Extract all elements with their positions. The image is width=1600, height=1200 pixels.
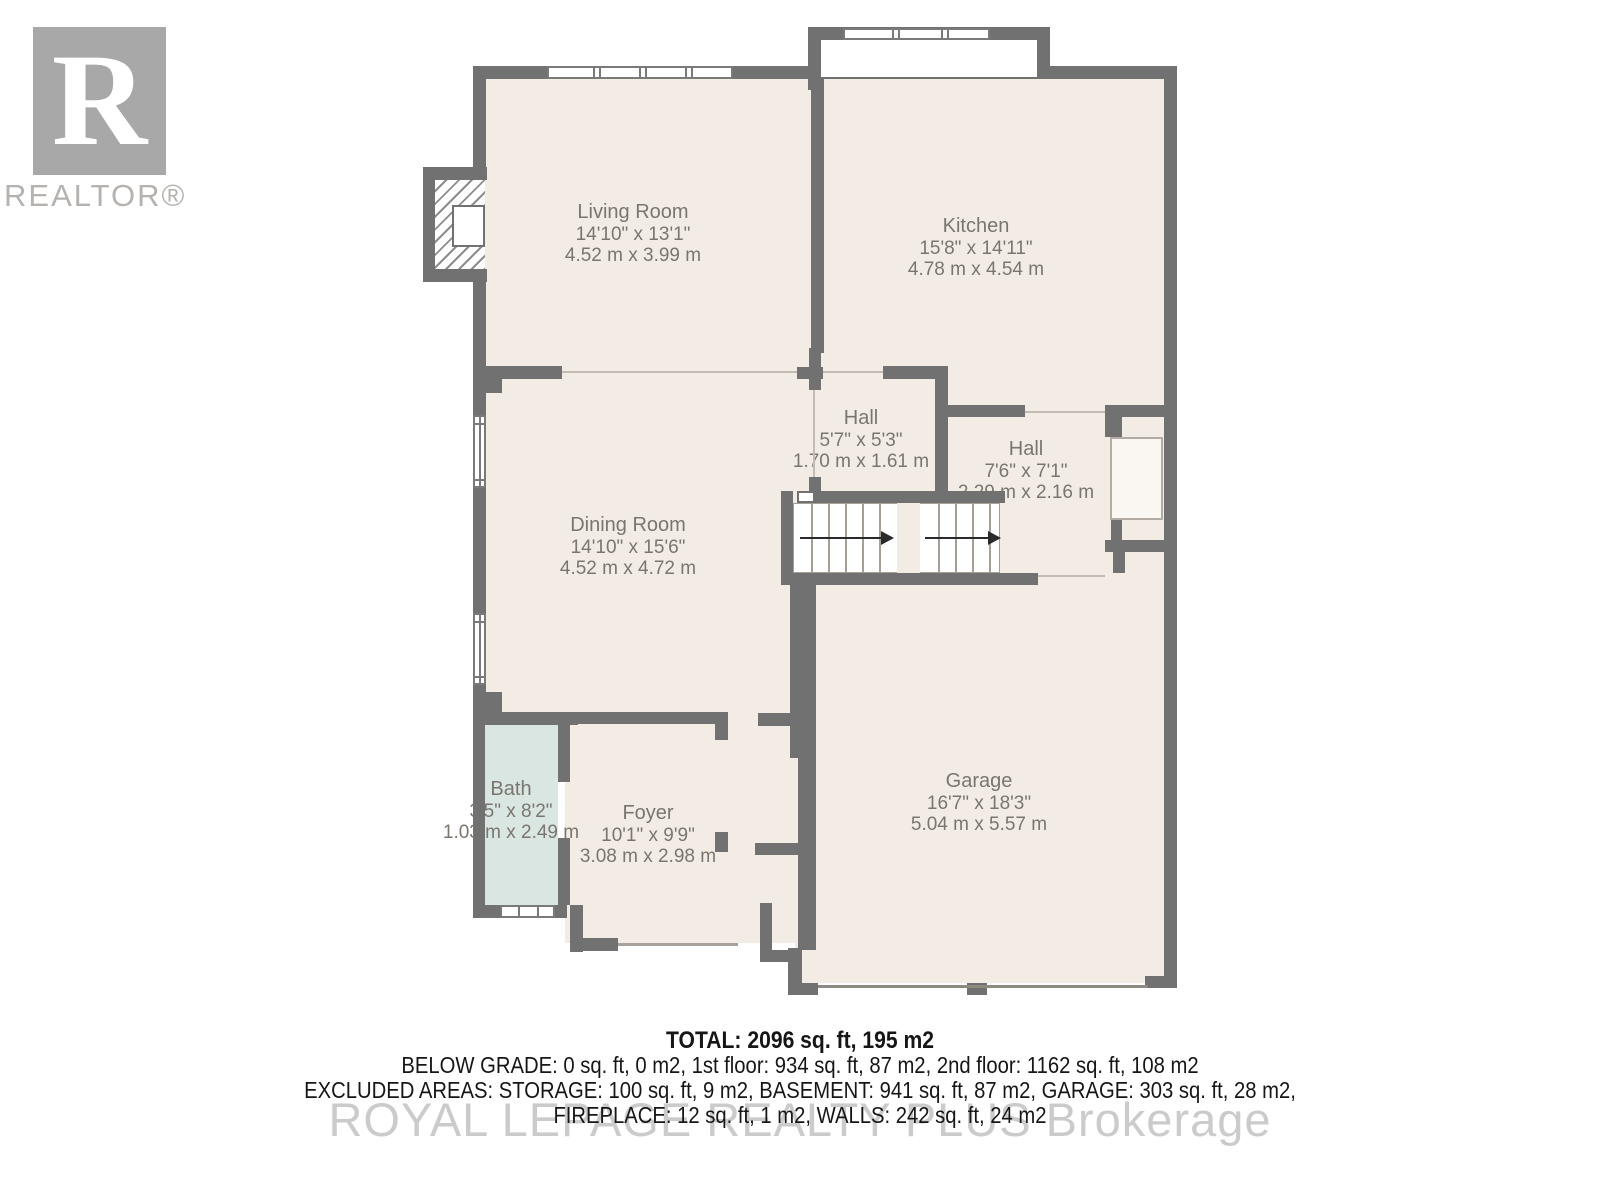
bath-window	[500, 905, 555, 918]
room-dim-imperial: 15'8" x 14'11"	[846, 238, 1106, 259]
opening-line	[1038, 575, 1105, 577]
bay-window-interior	[821, 40, 1037, 78]
wall	[935, 366, 948, 503]
floor-dining-lower	[480, 585, 790, 715]
wall-garage-left	[790, 585, 816, 758]
wall	[473, 66, 486, 180]
wall	[473, 725, 485, 905]
fireplace-wall	[423, 269, 487, 282]
staircase-landing-gap	[897, 503, 920, 573]
wall	[1111, 520, 1122, 542]
opening-line	[823, 371, 883, 373]
wall-garage-bottom	[1145, 976, 1177, 988]
realtor-logo-r: R	[33, 27, 166, 175]
wall-cross-junction	[797, 367, 823, 379]
summary-line: BELOW GRADE: 0 sq. ft, 0 m2, 1st floor: …	[96, 1053, 1504, 1078]
wall-stairs-top	[815, 491, 1005, 503]
wall-right-exterior	[1164, 66, 1177, 988]
room-dim-metric: 4.52 m x 3.99 m	[503, 245, 763, 266]
summary-total: TOTAL: 2096 sq. ft, 195 m2	[96, 1028, 1504, 1053]
wall	[758, 713, 792, 726]
stairs-arrowhead-icon	[988, 531, 1001, 545]
living-room-window	[547, 66, 733, 79]
bay-wall	[1037, 27, 1050, 79]
stairs-direction-arrow	[925, 537, 988, 539]
fireplace-wall	[423, 167, 487, 180]
wall-foyer-bottom	[570, 938, 618, 951]
wall-living-kitchen-divider	[811, 79, 824, 353]
realtor-logo: R	[33, 27, 166, 175]
room-name: Garage	[849, 769, 1109, 793]
wall-garage-top	[788, 573, 1038, 585]
opening-line	[562, 371, 797, 373]
room-name: Bath	[381, 777, 641, 801]
room-dim-metric: 4.52 m x 4.72 m	[498, 558, 758, 579]
room-label-foyer: Foyer 10'1" x 9'9" 3.08 m x 2.98 m	[518, 801, 778, 867]
opening-line	[813, 390, 815, 477]
wall	[760, 950, 790, 962]
room-label-garage: Garage 16'7" x 18'3" 5.04 m x 5.57 m	[849, 769, 1109, 835]
summary-line: EXCLUDED AREAS: STORAGE: 100 sq. ft, 9 m…	[96, 1078, 1504, 1103]
room-dim-imperial: 10'1" x 9'9"	[518, 825, 778, 846]
dining-room-window	[473, 613, 486, 685]
wall	[1105, 417, 1122, 437]
wall-garage-bottom	[788, 983, 818, 995]
wall-foyer-right	[715, 832, 728, 852]
wall	[473, 282, 486, 415]
wall-garage-left	[798, 758, 816, 950]
front-door-threshold	[618, 943, 738, 946]
wall	[1113, 547, 1125, 573]
wall	[1105, 405, 1177, 417]
wall	[760, 903, 772, 953]
stairs-arrowhead-icon	[881, 531, 894, 545]
room-label-living-room: Living Room 14'10" x 13'1" 4.52 m x 3.99…	[503, 200, 763, 266]
wall	[486, 379, 502, 393]
bay-sill-line	[821, 77, 1037, 79]
dining-room-window	[473, 415, 486, 488]
stairs-direction-arrow	[800, 537, 881, 539]
room-label-dining-room: Dining Room 14'10" x 15'6" 4.52 m x 4.72…	[498, 513, 758, 579]
room-dim-imperial: 14'10" x 15'6"	[498, 537, 758, 558]
wall	[473, 66, 547, 79]
room-dim-metric: 3.08 m x 2.98 m	[518, 846, 778, 867]
stairs-newel-box	[797, 491, 815, 503]
kitchen-bay-window	[843, 28, 990, 40]
room-dim-metric: 4.78 m x 4.54 m	[846, 259, 1106, 280]
floor-plan-page: Living Room 14'10" x 13'1" 4.52 m x 3.99…	[0, 0, 1600, 1200]
wall	[948, 405, 1025, 417]
wall-foyer-right	[715, 712, 728, 740]
summary-line: FIREPLACE: 12 sq. ft, 1 m2, WALLS: 242 s…	[96, 1103, 1504, 1128]
wall	[473, 488, 486, 613]
garage-door-line	[818, 985, 1148, 988]
wall-bath-right	[558, 838, 570, 905]
fireplace-wall	[423, 167, 435, 282]
room-dim-metric: 5.04 m x 5.57 m	[849, 814, 1109, 835]
fireplace-firebox	[452, 205, 485, 247]
wall	[733, 66, 812, 79]
area-summary: TOTAL: 2096 sq. ft, 195 m2 BELOW GRADE: …	[0, 1028, 1600, 1128]
realtor-logo-label: REALTOR®	[4, 178, 224, 214]
wall	[755, 843, 798, 855]
room-label-kitchen: Kitchen 15'8" x 14'11" 4.78 m x 4.54 m	[846, 214, 1106, 280]
room-name: Kitchen	[846, 214, 1106, 238]
wall-living-dining-divider	[473, 366, 562, 379]
room-dim-imperial: 14'10" x 13'1"	[503, 224, 763, 245]
wall-bath-right	[558, 725, 570, 782]
wall-stairs-left	[781, 491, 793, 585]
room-name: Dining Room	[498, 513, 758, 537]
wall	[1050, 66, 1177, 79]
room-name: Foyer	[518, 801, 778, 825]
wall-foyer-top	[578, 712, 715, 724]
room-dim-imperial: 16'7" x 18'3"	[849, 793, 1109, 814]
wall-bath-top	[473, 712, 578, 725]
opening-line	[1025, 411, 1105, 413]
room-name: Living Room	[503, 200, 763, 224]
wall	[486, 692, 502, 712]
